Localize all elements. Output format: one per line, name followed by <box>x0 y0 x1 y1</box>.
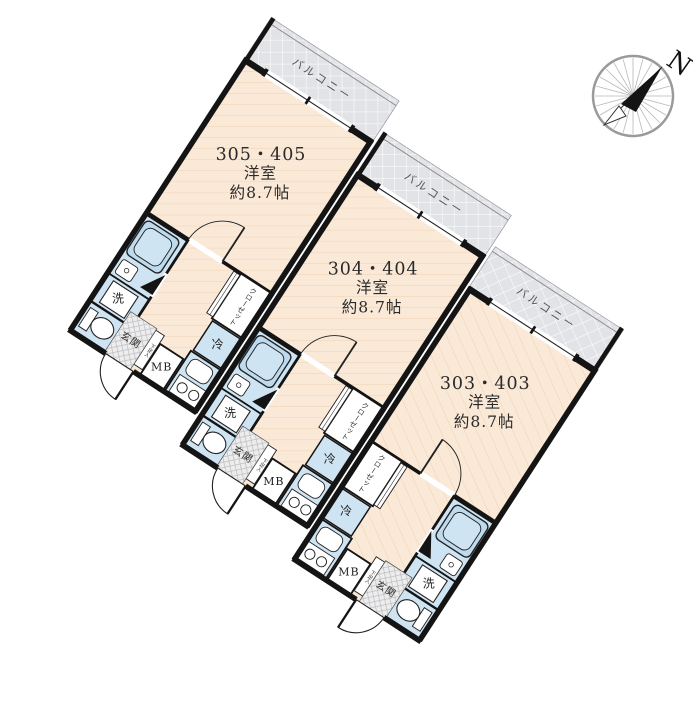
fridge-label: 冷 <box>340 506 352 518</box>
room-number-label: 305・405 <box>216 146 307 163</box>
washer-label: 洗 <box>112 293 124 305</box>
room-type-label: 洋室 <box>468 396 501 412</box>
washer-label: 洗 <box>423 578 435 590</box>
floorplan: バルコニー 305・405 洋室 約8.7帖 クローゼット 冷 洗 MB 玄関 … <box>24 16 663 650</box>
room-size-label: 約8.7帖 <box>230 186 291 202</box>
washer-label: 洗 <box>224 408 236 420</box>
room-size-label: 約8.7帖 <box>342 300 403 316</box>
room-size-label: 約8.7帖 <box>454 415 515 431</box>
room-number-label: 304・404 <box>328 261 419 278</box>
compass: N <box>583 34 693 154</box>
compass-tail <box>604 106 626 125</box>
fridge-label: 冷 <box>212 339 224 351</box>
room-type-label: 洋室 <box>356 281 389 297</box>
fridge-label: 冷 <box>324 454 336 466</box>
floorplan-canvas: バルコニー 305・405 洋室 約8.7帖 クローゼット 冷 洗 MB 玄関 … <box>0 0 700 723</box>
room-type-label: 洋室 <box>244 167 277 183</box>
meter-box-label: MB <box>263 476 284 487</box>
meter-box-label: MB <box>151 361 172 372</box>
room-number-label: 303・403 <box>440 375 531 392</box>
floorplan-drawing <box>0 16 668 695</box>
meter-box-label: MB <box>338 566 359 577</box>
